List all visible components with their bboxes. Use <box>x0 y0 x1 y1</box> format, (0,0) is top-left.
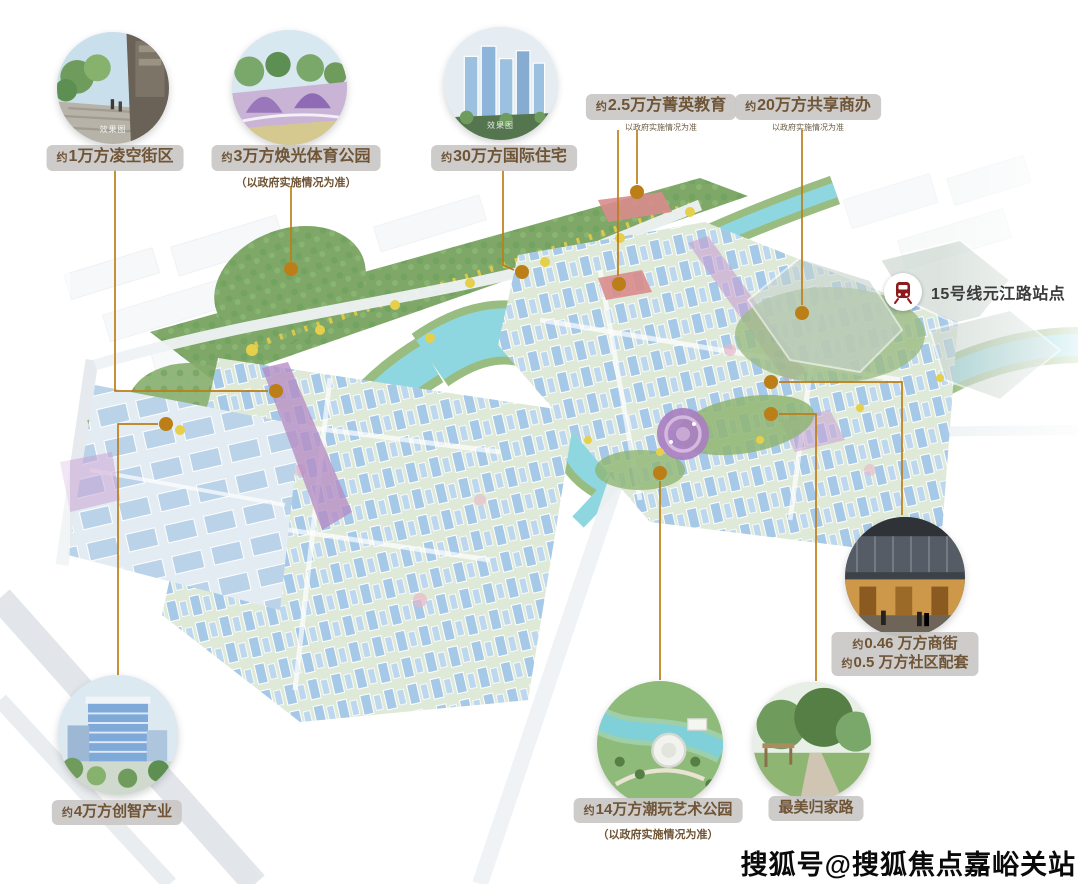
callout-sports-park: 约3万方焕光体育公园 （以政府实施情况为准） <box>212 145 381 190</box>
label-homecoming: 最美归家路 <box>768 796 863 821</box>
label-office: 约20万方共享商办 <box>735 94 881 120</box>
label-sports-park: 约3万方焕光体育公园 <box>212 145 381 171</box>
note-sports-park: （以政府实施情况为准） <box>236 174 357 190</box>
label-residence: 约30万方国际住宅 <box>431 145 577 171</box>
label-industry: 约4万方创智产业 <box>52 800 182 825</box>
art-park-photo-illustration <box>597 681 723 807</box>
label-lingkong: 约1万方凌空街区 <box>47 145 184 171</box>
callout-homecoming: 最美归家路 <box>768 796 863 821</box>
photo-caption: 效果图 <box>444 120 557 131</box>
photo-industry-office <box>58 675 178 795</box>
homecoming-path-photo-illustration <box>753 682 871 800</box>
note-art-park: （以政府实施情况为准） <box>598 826 719 842</box>
watermark-sohu: 搜狐号@搜狐焦点嘉峪关站 <box>741 843 1076 882</box>
callout-industry: 约4万方创智产业 <box>52 800 182 825</box>
metro-train-icon <box>884 273 922 311</box>
callout-lingkong: 约1万方凌空街区 <box>47 145 184 171</box>
metro-station-label: 15号线元江路站点 <box>931 280 1065 304</box>
callout-education: 约2.5万方菁英教育 以政府实施情况为准 <box>586 94 736 133</box>
label-education: 约2.5万方菁英教育 <box>586 94 736 120</box>
callout-office: 约20万方共享商办 以政府实施情况为准 <box>735 94 881 133</box>
note-education: 以政府实施情况为准 <box>625 122 697 133</box>
sports-park-photo-illustration <box>232 30 347 145</box>
callout-art-park: 约14万方潮玩艺术公园 （以政府实施情况为准） <box>574 798 743 842</box>
note-office: 以政府实施情况为准 <box>772 122 844 133</box>
photo-international-residence: 效果图 <box>444 27 557 140</box>
callout-residence: 约30万方国际住宅 <box>431 145 577 171</box>
office-photo-illustration <box>58 675 178 795</box>
photo-homecoming-path <box>753 682 871 800</box>
callout-shopping-street: 约0.46 万方商街 约0.5 万方社区配套 <box>831 632 978 676</box>
photo-caption: 效果图 <box>57 124 169 135</box>
photo-lingkong-street: 效果图 <box>57 32 169 144</box>
callout-metro-station: 15号线元江路站点 <box>884 273 1065 311</box>
label-art-park: 约14万方潮玩艺术公园 <box>574 798 743 823</box>
photo-sports-park <box>232 30 347 145</box>
photo-art-park <box>597 681 723 807</box>
shopping-street-photo-illustration <box>845 517 965 637</box>
photo-shopping-street <box>845 517 965 637</box>
label-shopping-street: 约0.46 万方商街 约0.5 万方社区配套 <box>831 632 978 676</box>
masterplan-promo-image: 效果图 效果图 <box>0 0 1080 884</box>
fade-left <box>0 150 70 570</box>
